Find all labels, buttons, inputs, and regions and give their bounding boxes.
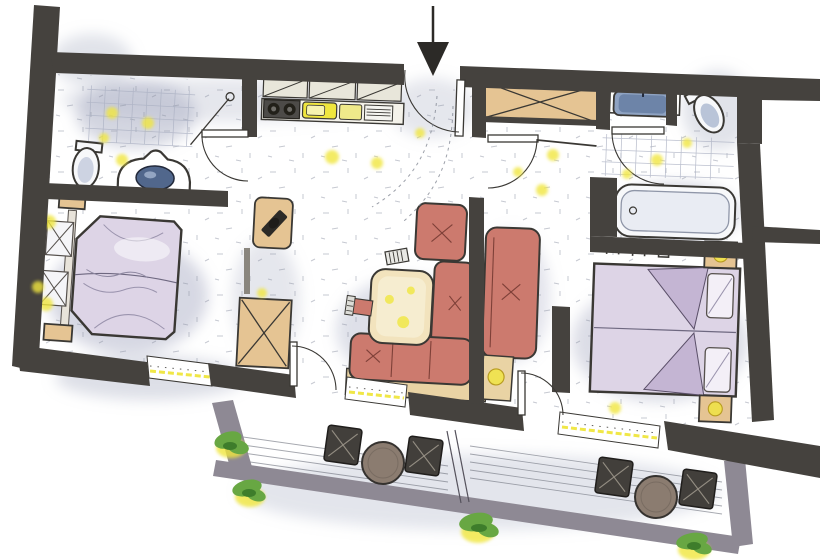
kitchen-appliance [339, 104, 392, 121]
wall-stub-right [752, 226, 820, 244]
nightstand [43, 324, 72, 342]
wall-bath-right-b [666, 89, 677, 126]
floor-plan-canvas [0, 0, 820, 560]
wall-hall-left [242, 76, 257, 137]
armchair [415, 203, 468, 262]
balcony-chair [405, 436, 444, 476]
floor-plan-page [0, 0, 820, 560]
cooktop [263, 100, 300, 119]
wall-bedroom-right [552, 306, 570, 393]
bathtub [614, 184, 736, 240]
balcony-chair [324, 425, 363, 465]
daybed-platform [481, 355, 514, 401]
kitchen-sink [302, 102, 337, 119]
balcony-chair [679, 469, 718, 509]
tv-cabinet [253, 197, 294, 249]
plant [212, 428, 250, 458]
coffee-table [368, 268, 434, 345]
entry-arrow-icon [417, 6, 449, 76]
wall-bath-right-c [590, 177, 617, 237]
wardrobe-left [236, 298, 291, 369]
wall-divider [469, 197, 484, 404]
kitchen [261, 77, 404, 124]
wall-thin-passage [244, 248, 250, 294]
balcony-chair [595, 457, 634, 497]
balcony-table [635, 476, 677, 518]
balcony-table [362, 442, 404, 484]
double-bed-left [70, 215, 182, 340]
daybed [482, 227, 541, 359]
wall-bath-right-a [596, 87, 610, 130]
wall-vestibule [472, 73, 486, 138]
